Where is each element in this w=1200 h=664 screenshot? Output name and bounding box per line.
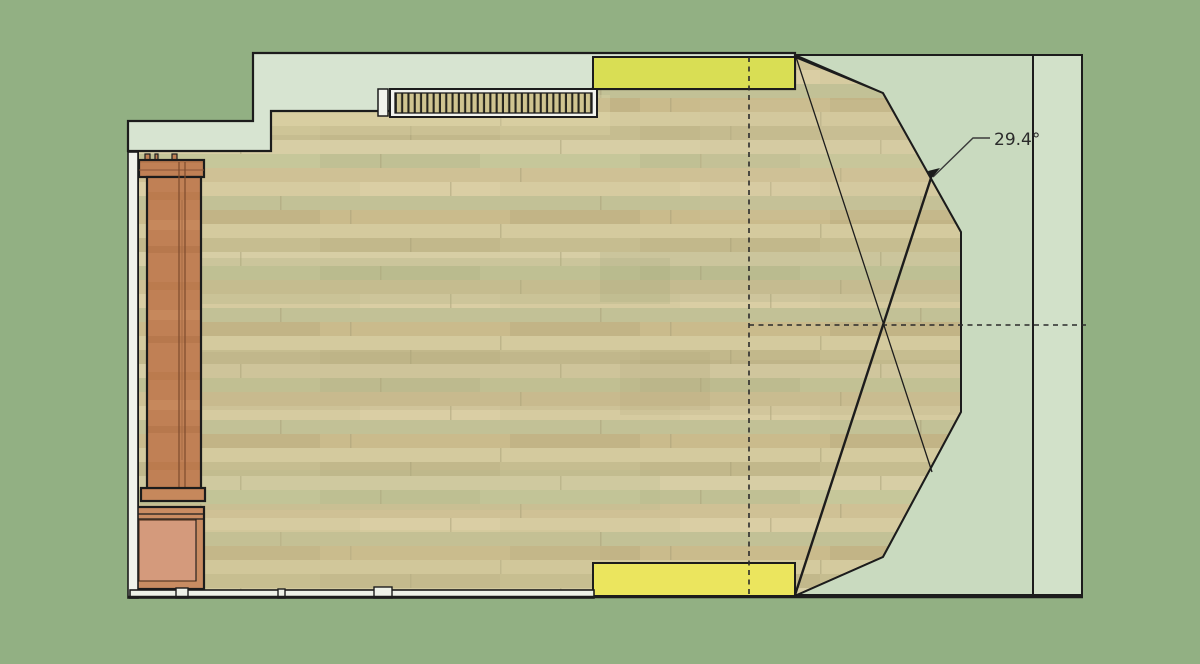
left-wall-cut (128, 152, 138, 598)
furniture-headboard (139, 160, 204, 177)
furniture-cabinet (133, 507, 204, 589)
furniture-footboard (141, 488, 205, 501)
furniture-body (147, 177, 201, 489)
floorplan-canvas[interactable]: 29.4° (0, 0, 1200, 664)
yellow-panel-bottom (593, 563, 795, 596)
wall-slot (378, 89, 388, 116)
angle-label: 29.4° (994, 130, 1040, 150)
yellow-panel-top (593, 57, 795, 89)
floorplan-drawing: 29.4° (0, 0, 1200, 664)
vent-grille (390, 89, 597, 117)
